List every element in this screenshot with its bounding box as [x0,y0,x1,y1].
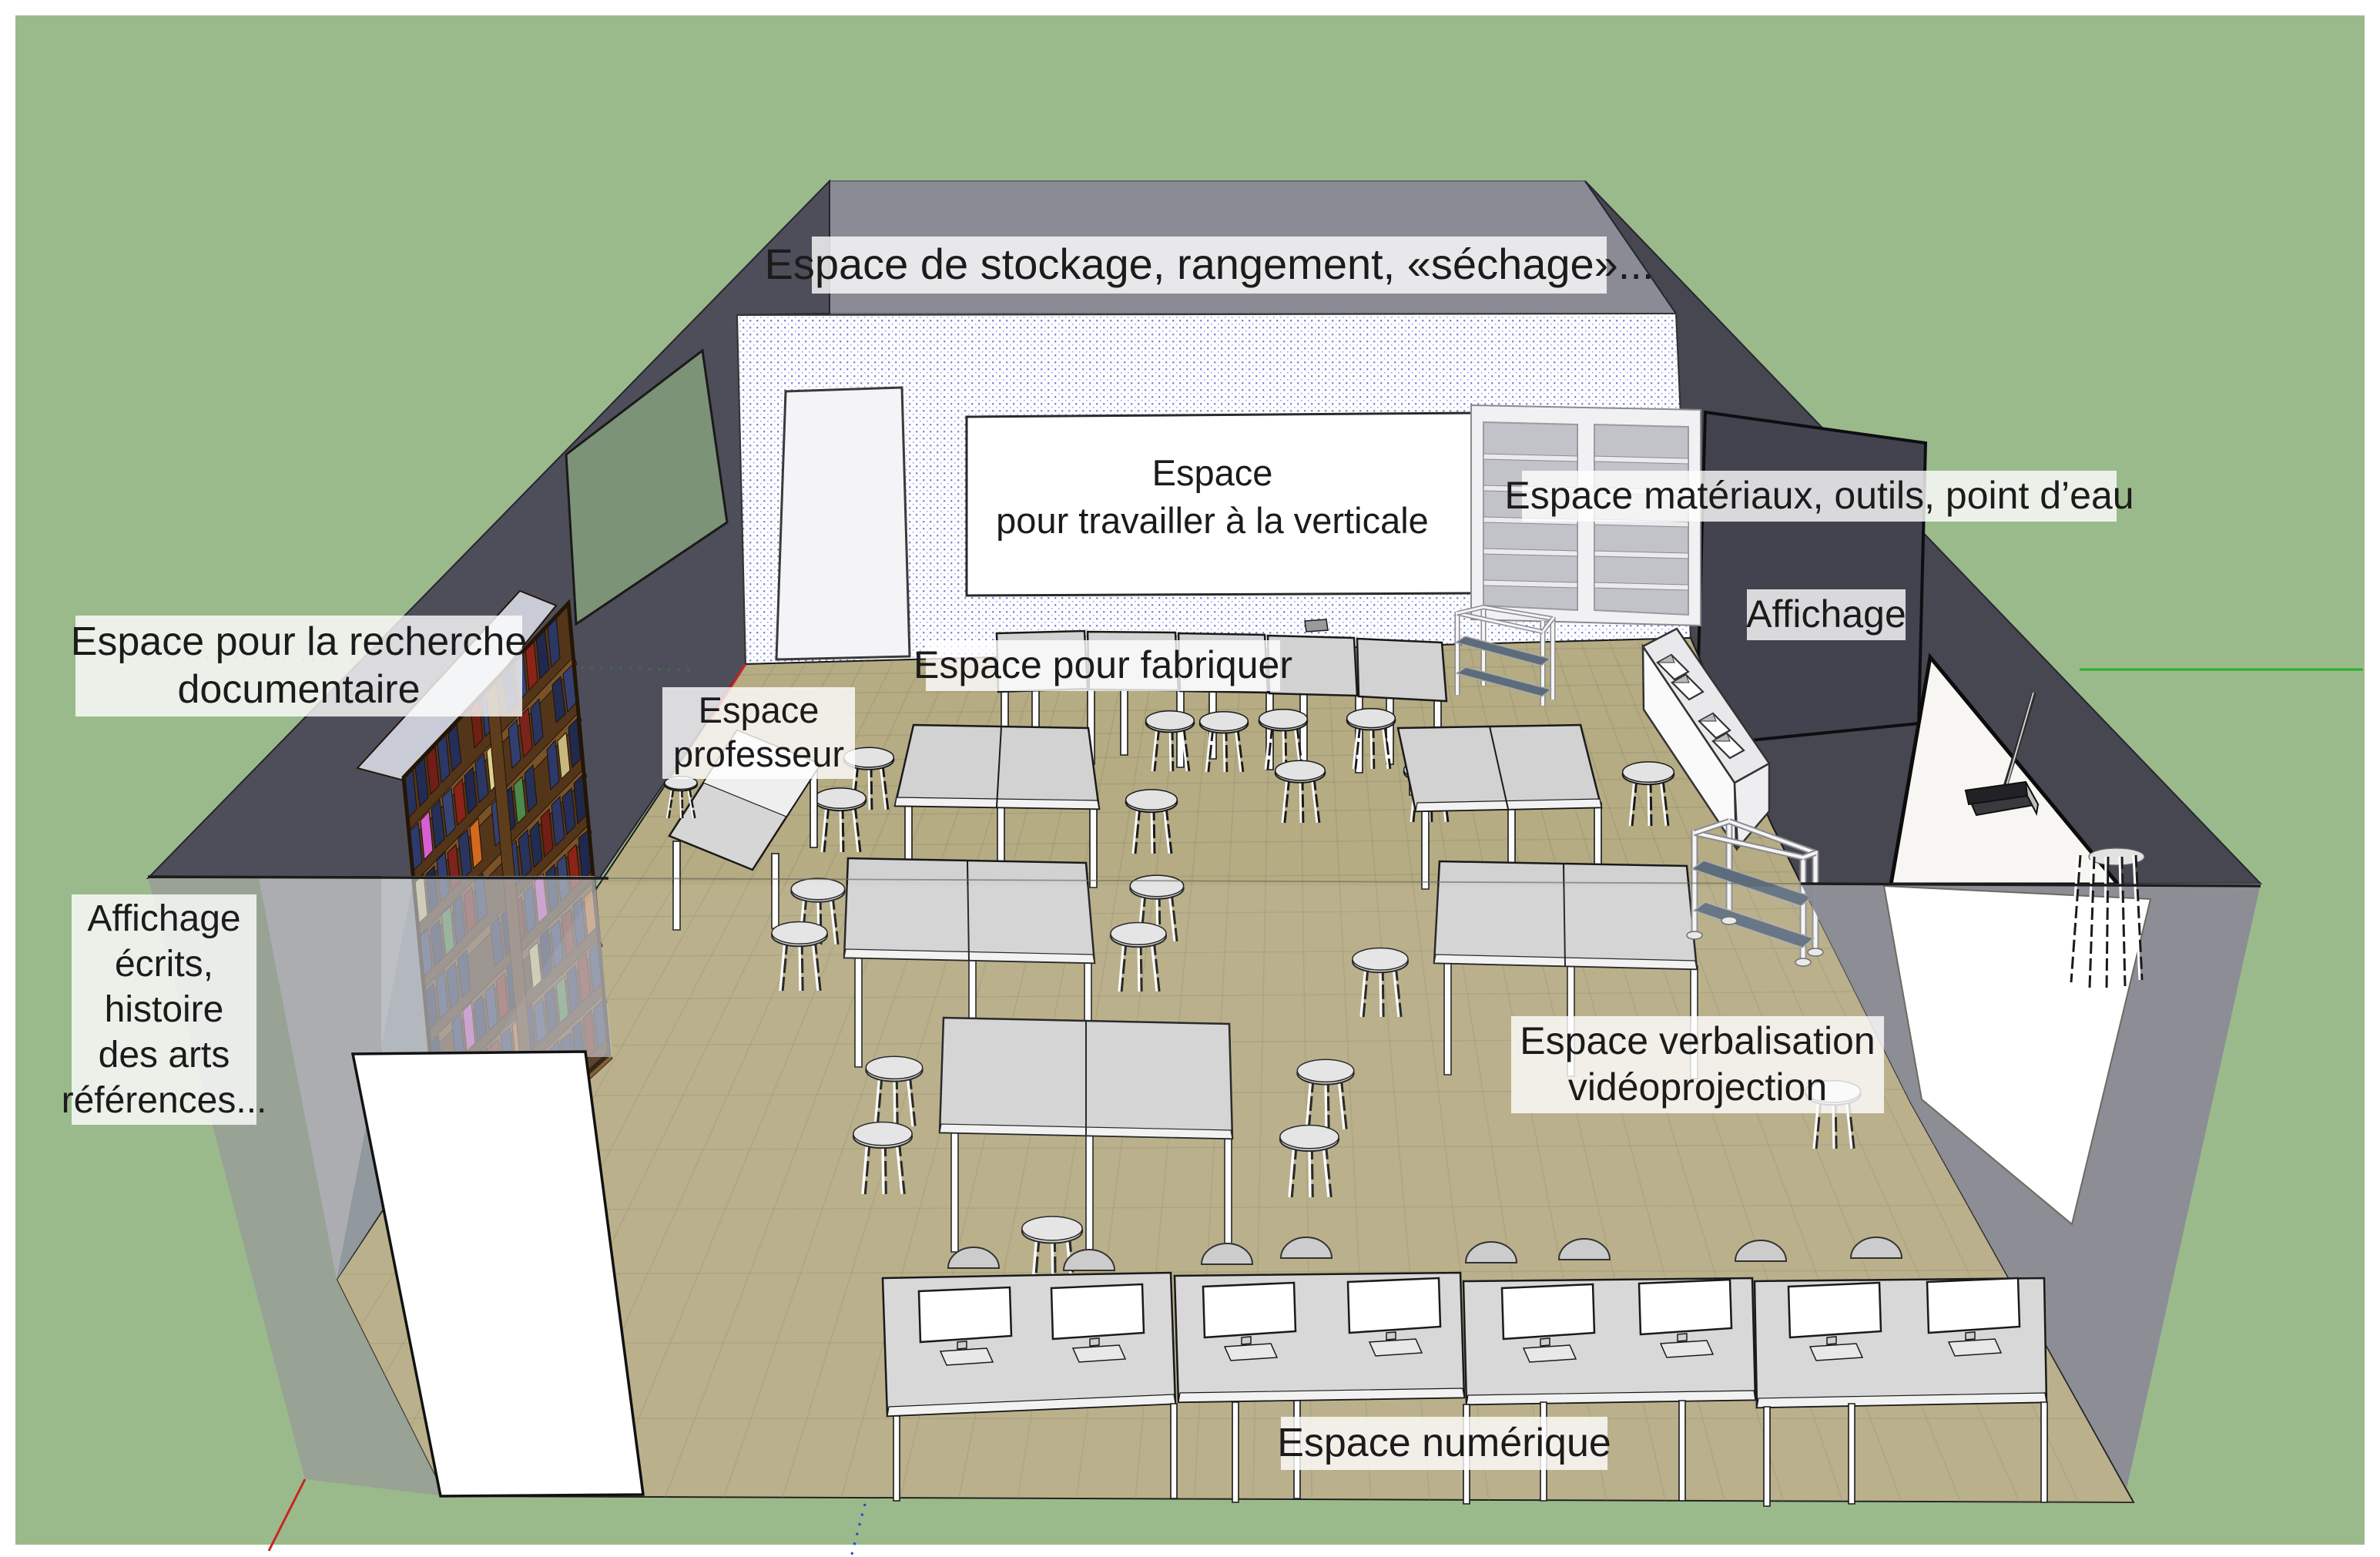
svg-text:Espace matériaux, outils, poin: Espace matériaux, outils, point d’eau [1504,474,2134,517]
svg-text:pour travailler à la verticale: pour travailler à la verticale [996,500,1429,541]
svg-text:écrits,: écrits, [115,944,213,985]
svg-text:histoire: histoire [105,989,224,1030]
svg-text:professeur: professeur [673,733,844,774]
svg-text:Espace: Espace [1152,452,1273,493]
svg-text:Espace numérique: Espace numérique [1277,1421,1611,1465]
svg-text:Espace pour la recherche: Espace pour la recherche [71,619,528,664]
svg-text:Affichage: Affichage [87,898,240,939]
svg-text:des arts: des arts [99,1035,230,1075]
svg-text:Affichage: Affichage [1746,592,1906,636]
svg-text:Espace: Espace [699,690,820,730]
svg-text:références...: références... [62,1080,267,1121]
svg-text:vidéoprojection: vidéoprojection [1568,1065,1827,1109]
svg-text:Espace de stockage, rangement,: Espace de stockage, rangement, «séchage»… [765,240,1654,288]
svg-text:Espace pour fabriquer: Espace pour fabriquer [913,643,1292,686]
svg-text:documentaire: documentaire [177,667,420,712]
svg-text:Espace verbalisation: Espace verbalisation [1520,1019,1875,1062]
